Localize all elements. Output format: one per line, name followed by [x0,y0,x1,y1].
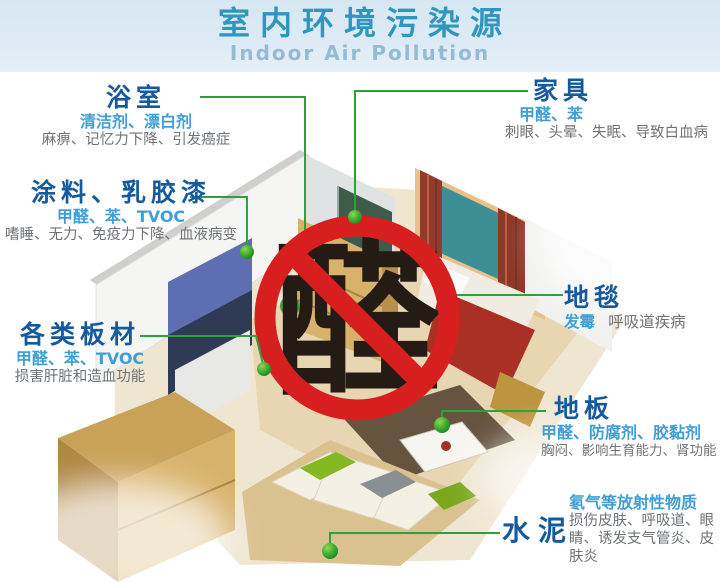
callout-paint-effects: 嗜睡、无力、免疫力下降、血液病变 [2,226,240,244]
callout-furniture-effects: 刺眼、头晕、失眠、导致白血病 [505,124,715,142]
callout-cement-body: 氡气等放射性物质 损伤皮肤、呼吸道、眼睛、诱发支气管炎、皮肤炎 [569,493,719,566]
callout-paint: 涂料、乳胶漆 甲醛、苯、TVOC 嗜睡、无力、免疫力下降、血液病变 [2,178,240,244]
callout-carpet-effects: 呼吸道疾病 [608,313,686,331]
callout-furniture: 家具 甲醛、苯 刺眼、头晕、失眠、导致白血病 [505,76,715,142]
callout-cement-title-block: 水泥 [502,514,574,547]
callout-cement-substances: 氡气等放射性物质 [569,493,719,512]
callout-bathroom-effects: 麻痹、记忆力下降、引发癌症 [28,131,244,149]
callout-carpet-substances: 发霉 [564,313,595,331]
callout-floor: 地板 甲醛、防腐剂、胶黏剂 胸闷、影响生育能力、肾功能 [541,394,720,460]
dot-floor [434,417,450,433]
dot-cement [322,543,338,559]
dot-paint [240,245,254,259]
callout-bathroom-substances: 清洁剂、漂白剂 [28,112,244,131]
table-bowl [441,441,451,451]
callout-paint-substances: 甲醛、苯、TVOC [2,207,240,226]
callout-furniture-substances: 甲醛、苯 [505,105,715,124]
callout-paint-title: 涂料、乳胶漆 [2,178,240,207]
callout-furniture-title: 家具 [505,76,715,105]
callout-carpet: 地毯 发霉 呼吸道疾病 [564,283,686,332]
callout-boards-effects: 损害肝脏和造血功能 [4,368,156,386]
dot-boards [257,362,271,376]
callout-bathroom: 浴室 清洁剂、漂白剂 麻痹、记忆力下降、引发癌症 [28,83,244,149]
callout-floor-title: 地板 [541,394,720,423]
callout-cement-effects: 损伤皮肤、呼吸道、眼睛、诱发支气管炎、皮肤炎 [569,512,719,566]
callout-floor-substances: 甲醛、防腐剂、胶黏剂 [541,423,720,442]
infographic-indoor-air-pollution: 室内环境污染源 Indoor Air Pollution [0,0,720,582]
callout-boards-title: 各类板材 [4,320,156,349]
callout-cement-title: 水泥 [502,514,574,547]
callout-boards-substances: 甲醛、苯、TVOC [4,349,156,368]
callout-boards: 各类板材 甲醛、苯、TVOC 损害肝脏和造血功能 [4,320,156,386]
callout-bathroom-title: 浴室 [28,83,244,112]
callout-floor-effects: 胸闷、影响生育能力、肾功能 [541,442,720,460]
dot-furniture [348,210,362,224]
callout-carpet-title: 地毯 [564,283,686,312]
